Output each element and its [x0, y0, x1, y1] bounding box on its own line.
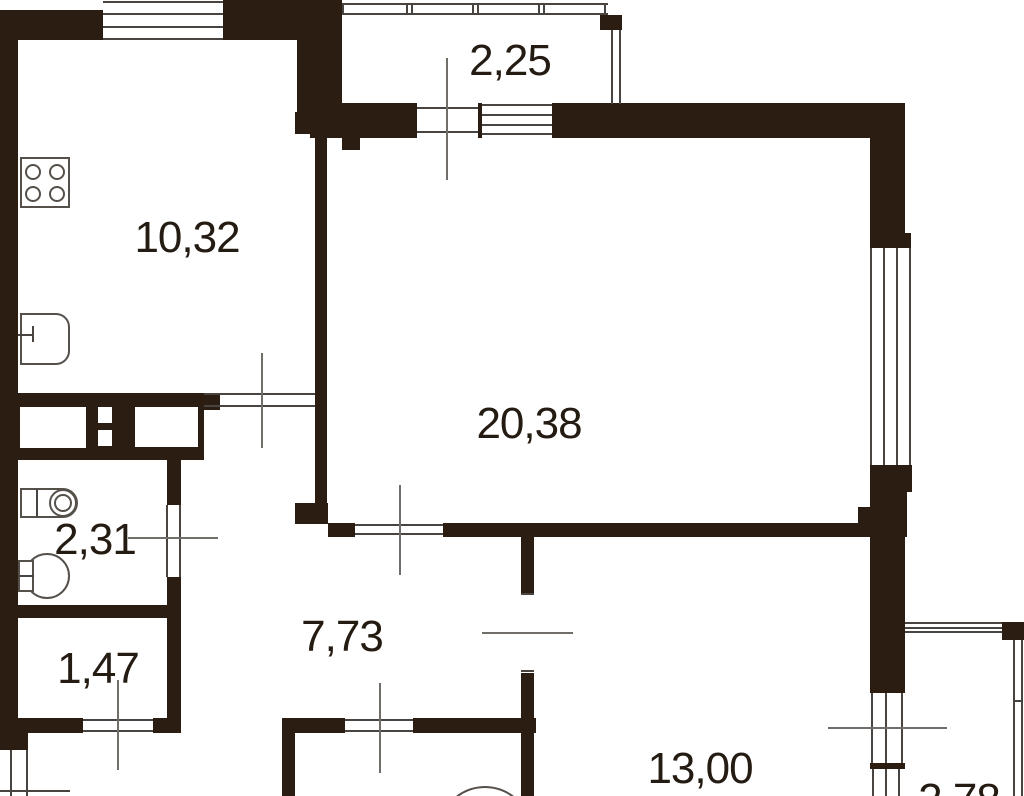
stove-burner-icon — [25, 186, 41, 202]
loggia-glazing-line — [905, 622, 1002, 624]
bathroom-door-edge — [166, 505, 168, 577]
balcony-glazing-mullion — [411, 3, 413, 15]
room-area-label-bedroom: 13,00 — [647, 744, 752, 794]
kitchen-sink-icon — [20, 313, 70, 365]
wall-loggia-corner — [1002, 622, 1024, 640]
room-area-label-living-room: 20,38 — [476, 399, 581, 449]
dimension-line-hall-door — [379, 683, 381, 773]
wall-bath-bottom — [18, 605, 167, 618]
wall-lower-room-left — [282, 733, 295, 796]
living-window-line — [883, 248, 885, 465]
kitchen-window-line — [103, 38, 223, 40]
wall-right-upper — [870, 138, 905, 234]
room-area-label-hallway: 7,73 — [301, 612, 383, 662]
shaft-hole-small-bottom — [98, 430, 112, 446]
kitchen-door-edge — [204, 393, 315, 395]
wall-right-lower — [870, 537, 905, 693]
wall-pier-top — [297, 0, 342, 115]
balcony-window-line — [482, 114, 552, 116]
living-window-line — [909, 248, 911, 465]
balcony-glazing-mullion — [538, 3, 540, 15]
wall-top-b — [223, 0, 297, 40]
wall-kitchen-right — [315, 133, 327, 505]
bedroom-door-edge — [521, 670, 534, 672]
balcony-glazing-mullion — [342, 3, 344, 15]
kitchen-sink-tap-icon — [32, 326, 34, 342]
wall-hall-step — [295, 503, 328, 524]
loggia-side-glazing-tick — [1013, 700, 1023, 702]
balcony-window-line — [482, 133, 552, 135]
balcony-glazing-line — [342, 13, 608, 15]
balcony-glazing-mullion — [477, 3, 479, 15]
room-area-label-kitchen: 10,32 — [134, 213, 239, 263]
loggia-window-line — [872, 769, 874, 796]
wall-living-top-step — [342, 138, 360, 150]
balcony-glazing-line — [342, 3, 608, 5]
shaft-hole-small-top — [98, 407, 112, 423]
loggia-side-glazing-line — [1021, 640, 1023, 796]
living-window-line — [896, 248, 898, 465]
room-area-label-balcony: 2,25 — [469, 36, 551, 86]
kitchen-window-line — [103, 13, 223, 15]
wall-left-exterior — [0, 10, 18, 750]
wall-balcony-corner — [600, 15, 622, 30]
wall-right-mid — [870, 492, 907, 537]
wall-living-top — [310, 103, 905, 138]
boundary-line — [0, 790, 70, 792]
kitchen-window-line — [103, 1, 223, 3]
balcony-window-line — [482, 104, 552, 106]
floor-plan: 10,32 2,25 20,38 2,31 1,47 7,73 13,00 2,… — [0, 0, 1024, 796]
round-fixture-icon — [438, 786, 532, 796]
wall-top-left — [0, 10, 103, 40]
shaft-notch — [204, 410, 220, 460]
room-area-label-loggia: 2,78 — [918, 775, 1000, 796]
loggia-window-line — [898, 769, 900, 796]
balcony-window-line — [482, 124, 552, 126]
stove-burner-icon — [49, 164, 65, 180]
dimension-line-kitchen-door — [261, 353, 263, 448]
wall-right-sill-bottom — [870, 465, 912, 492]
balcony-side-glazing-line — [619, 30, 621, 104]
wall-right-step — [858, 507, 872, 524]
loggia-window-line — [885, 769, 887, 796]
loggia-glazing-line — [905, 631, 1002, 633]
balcony-glazing-mullion — [543, 3, 545, 15]
dimension-line-bedroom-door — [482, 632, 573, 634]
room-area-label-bathroom: 2,31 — [54, 515, 136, 565]
loggia-side-glazing-line — [1013, 640, 1015, 796]
room-area-label-storage: 1,47 — [57, 644, 139, 694]
wall-bath-right-upper — [167, 455, 181, 505]
balcony-side-glazing-line — [611, 30, 613, 104]
wall-bath-right-lower — [167, 577, 181, 733]
bathroom-door-edge — [179, 505, 181, 577]
wall-left-bottom-block — [18, 718, 28, 750]
washbasin-drain-icon — [54, 494, 72, 512]
living-window-line — [870, 248, 872, 465]
shaft-hole-large-left — [20, 407, 86, 448]
balcony-glazing-mullion — [472, 3, 474, 15]
wall-right-sill-top — [870, 233, 911, 249]
balcony-glazing-mullion — [604, 3, 606, 15]
kitchen-window-line — [103, 26, 223, 28]
toilet-tap-icon — [18, 575, 34, 577]
dimension-line-loggia-window — [828, 727, 947, 729]
stove-burner-icon — [49, 186, 65, 202]
washbasin-divider — [36, 489, 38, 517]
dimension-line-bath-door — [128, 537, 218, 539]
kitchen-door-edge — [204, 405, 315, 407]
shaft-hole-large-right — [135, 407, 198, 447]
loggia-glazing-line — [905, 627, 1002, 629]
dimension-line-living-door — [399, 485, 401, 575]
balcony-glazing-mullion — [406, 3, 408, 15]
dimension-line-balcony-door — [446, 58, 448, 180]
bedroom-door-edge — [521, 593, 534, 595]
living-window-opening — [870, 248, 911, 465]
stove-burner-icon — [25, 164, 41, 180]
